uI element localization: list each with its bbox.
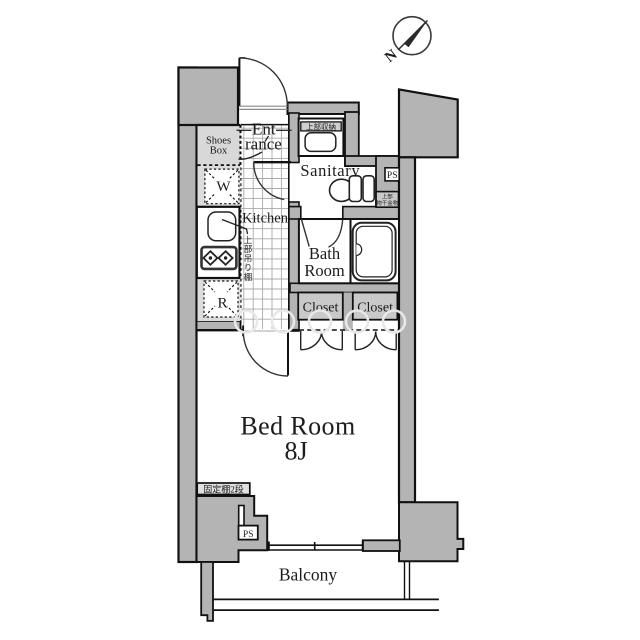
svg-text:8J: 8J (284, 437, 307, 466)
svg-text:固定棚2段: 固定棚2段 (203, 484, 244, 495)
svg-text:Room: Room (304, 261, 345, 280)
svg-text:W: W (216, 179, 231, 195)
svg-text:物干金物: 物干金物 (376, 199, 399, 207)
svg-text:Box: Box (210, 146, 228, 157)
svg-text:上部: 上部 (382, 193, 394, 201)
svg-text:R: R (217, 296, 227, 312)
svg-text:上部収納: 上部収納 (306, 122, 336, 132)
svg-text:棚: 棚 (244, 272, 253, 282)
svg-text:Balcony: Balcony (279, 565, 338, 585)
svg-text:PS: PS (243, 530, 254, 540)
svg-text:Closet: Closet (303, 301, 339, 316)
svg-text:rance: rance (245, 135, 282, 154)
svg-text:PS: PS (387, 171, 398, 181)
svg-text:Kitchen: Kitchen (242, 211, 289, 227)
